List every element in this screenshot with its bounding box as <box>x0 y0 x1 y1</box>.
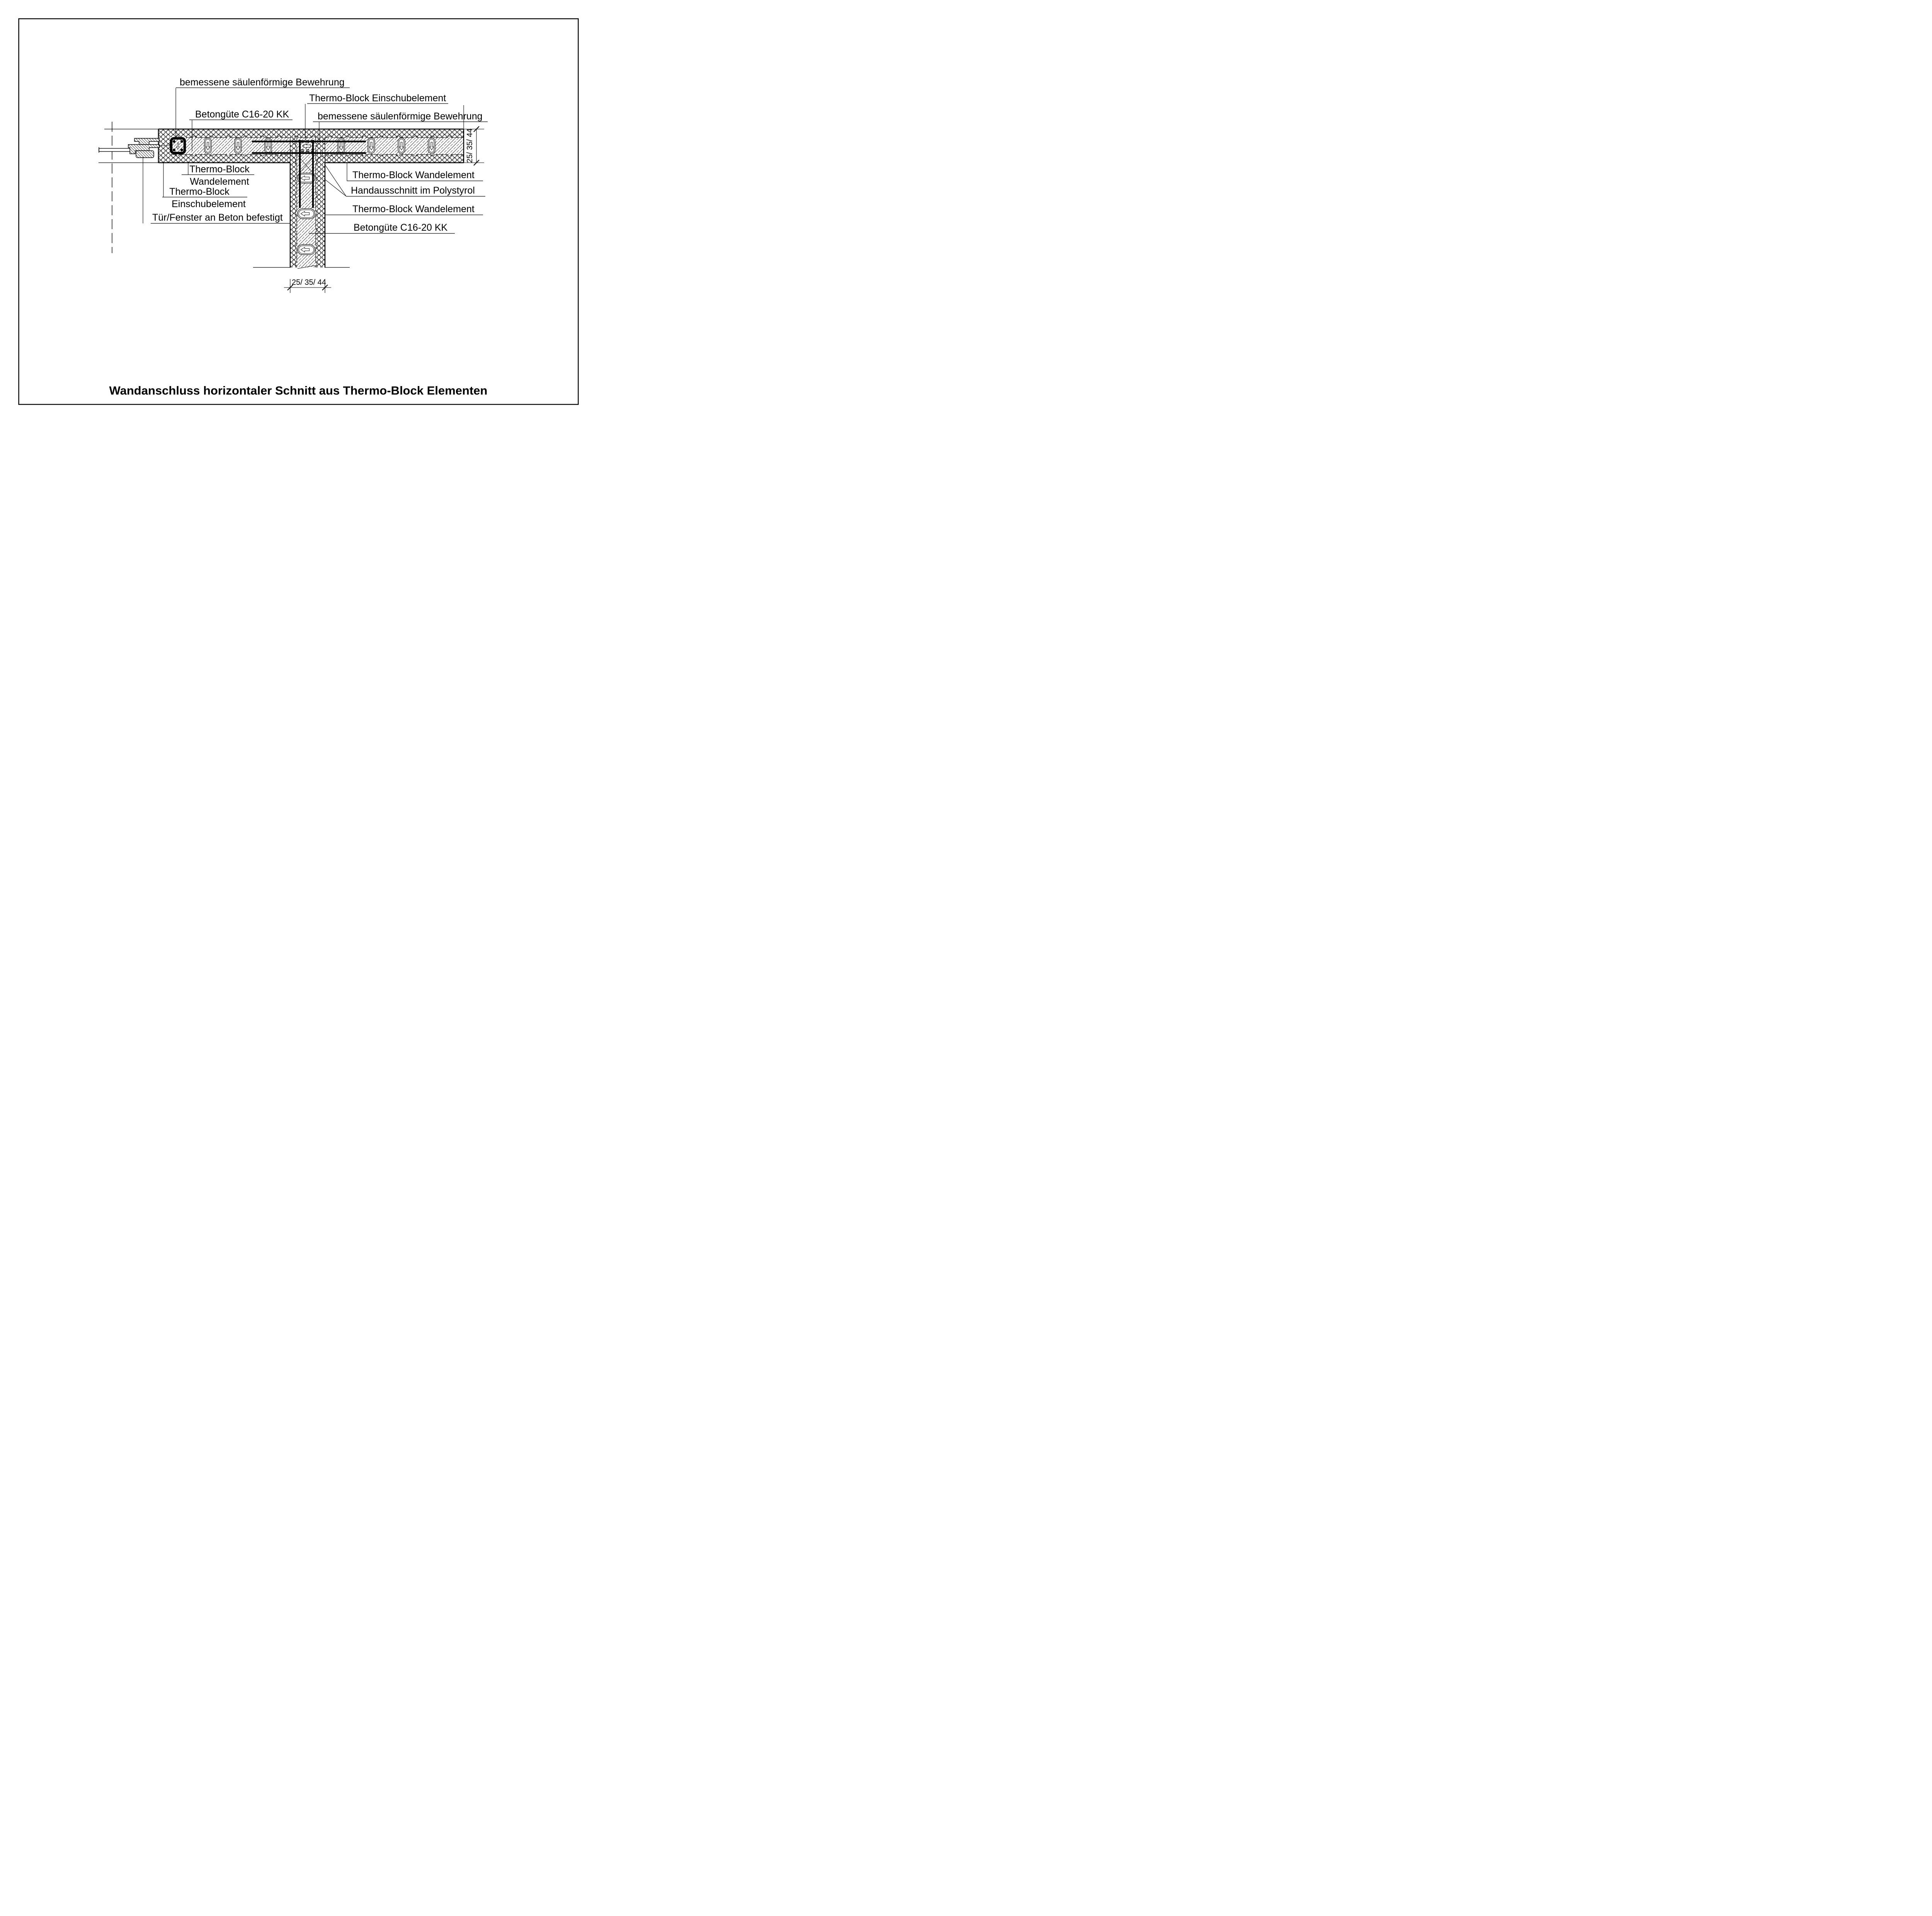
dimension-bottom-value: 25/ 35/ 44 <box>292 278 326 287</box>
annotation-handausschnitt: Handausschnitt im Polystyrol <box>351 185 475 196</box>
technical-drawing: 25/ 35/ 44 25/ 35/ 44 bemessene säulenfö… <box>0 0 597 422</box>
annotation-bewehrung-top-right: bemessene säulenförmige Bewehrung <box>318 111 483 122</box>
annotation-einschub-left-line1: Thermo-Block <box>169 186 230 197</box>
annotation-wandelement-left-line2: Wandelement <box>190 176 249 187</box>
annotation-tuer-fenster: Tür/Fenster an Beton befestigt <box>152 212 283 223</box>
annotation-betonguete-right: Betongüte C16-20 KK <box>354 222 448 233</box>
drawing-sheet: 25/ 35/ 44 25/ 35/ 44 bemessene säulenfö… <box>0 0 597 422</box>
annotation-bewehrung-top-left: bemessene säulenförmige Bewehrung <box>180 77 345 88</box>
drawing-title: Wandanschluss horizontaler Schnitt aus T… <box>109 384 488 397</box>
annotation-wandelement-right1: Thermo-Block Wandelement <box>352 170 474 180</box>
annotation-einschubelement-top: Thermo-Block Einschubelement <box>309 93 446 104</box>
dimension-right-value: 25/ 35/ 44 <box>466 129 474 163</box>
annotation-wandelement-left-line1: Thermo-Block <box>189 164 250 175</box>
annotation-wandelement-right2: Thermo-Block Wandelement <box>352 204 474 214</box>
annotation-einschub-left-line2: Einschubelement <box>172 199 246 209</box>
annotation-betonguete-top: Betongüte C16-20 KK <box>195 109 289 120</box>
